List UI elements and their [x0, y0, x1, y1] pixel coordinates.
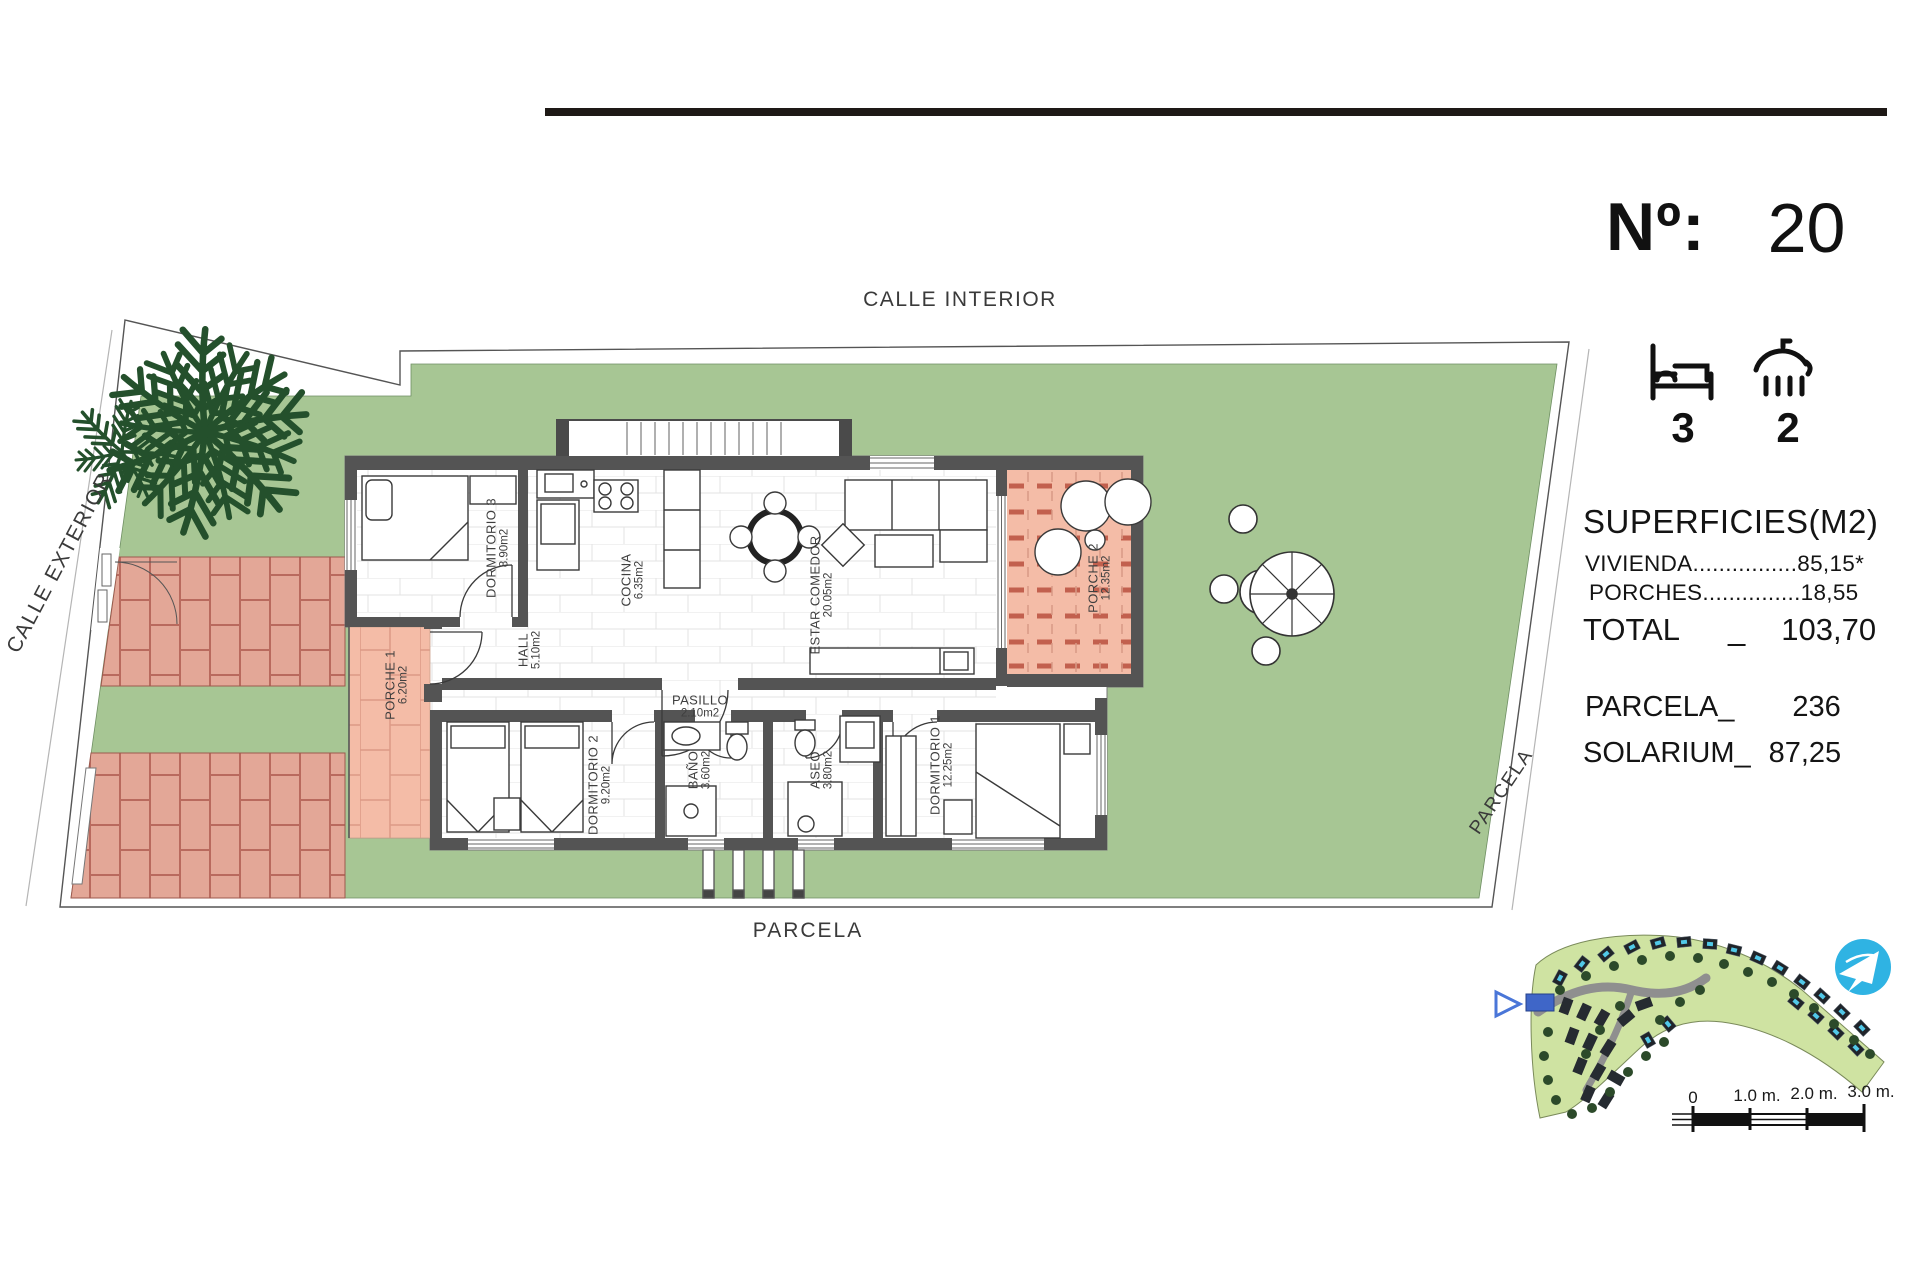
bathroom-count: 2 [1776, 404, 1799, 452]
scale-bar [1672, 1104, 1864, 1132]
room-label-dormitorio-3: DORMITORIO 3 8.90m2 [484, 498, 513, 598]
plot-number: Nº: 20 [1606, 188, 1845, 268]
bed-icon [1645, 342, 1721, 402]
room-label-porche-2: PORCHE 2 12.35m2 [1086, 543, 1115, 613]
room-label-estar-comedor: ESTAR COMEDOR 20.05m2 [808, 535, 837, 654]
solarium-row: SOLARIUM_ 87,25 [1583, 737, 1841, 770]
room-label-dormitorio-2: DORMITORIO 2 9.20m2 [586, 735, 615, 835]
highlighted-plot [1526, 994, 1554, 1011]
parasol [1250, 552, 1334, 636]
plot-number-label: Nº: [1606, 188, 1706, 266]
scale-label-1: 1.0 m. [1733, 1086, 1780, 1106]
room-label-dormitorio-1: DORMITORIO 1 12.25m2 [928, 715, 957, 815]
room-label-cocina: COCINA 6.35m2 [619, 554, 648, 607]
street-label-bottom: PARCELA [753, 919, 863, 943]
surface-row-porches: PORCHES...............18,55 [1589, 580, 1858, 606]
bedroom-count: 3 [1671, 404, 1694, 452]
room-label-porche-1: PORCHE 1 6.20m2 [383, 650, 412, 720]
header-rule [545, 108, 1887, 116]
surfaces-title: SUPERFICIES(M2) [1583, 503, 1878, 541]
plot-number-value: 20 [1768, 188, 1846, 268]
brick-driveway-upper [101, 557, 345, 686]
logo-icon [1835, 939, 1891, 995]
scale-label-3: 3.0 m. [1847, 1082, 1894, 1102]
street-label-top: CALLE INTERIOR [863, 288, 1057, 312]
room-label-bano: BAÑO 3.60m2 [686, 751, 715, 789]
room-label-hall: HALL 5.10m2 [516, 631, 545, 669]
brick-driveway-lower [71, 753, 345, 898]
stair-block [557, 420, 851, 457]
house [345, 420, 1151, 898]
scale-label-0: 0 [1688, 1088, 1697, 1108]
surface-row-vivienda: VIVIENDA................85,15* [1585, 551, 1864, 577]
room-label-aseo: ASEO 3.80m2 [808, 751, 837, 789]
surface-total: TOTAL _ 103,70 [1583, 612, 1851, 648]
plot-marker-arrow [1496, 992, 1520, 1016]
plan-sheet: CALLE INTERIOR CALLE EXTERIOR PARCELA PA… [0, 0, 1920, 1280]
parcela-row: PARCELA_ 236 [1585, 691, 1841, 724]
room-label-pasillo: PASILLO 2.10m2 [672, 693, 728, 722]
shower-icon [1748, 336, 1818, 402]
scale-label-2: 2.0 m. [1790, 1084, 1837, 1104]
